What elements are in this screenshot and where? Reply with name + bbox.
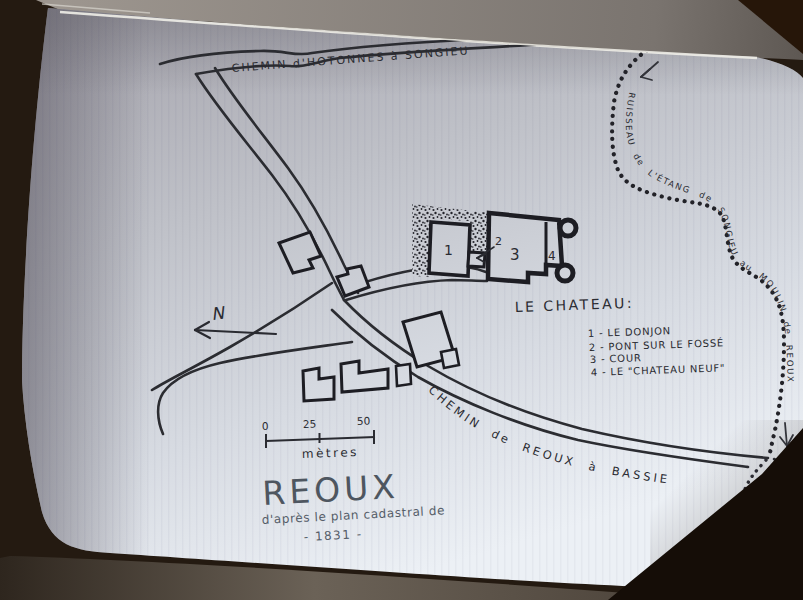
book-photo: CHEMIN d'HOTONNES à SONGIEU CHEMIN de RE… <box>0 0 803 600</box>
scale-0: 0 <box>262 420 269 432</box>
marker-3: 3 <box>510 246 520 264</box>
scale-25: 25 <box>303 418 317 430</box>
map-photo-svg: CHEMIN d'HOTONNES à SONGIEU CHEMIN de RE… <box>0 0 803 600</box>
chateau-tower-north <box>560 220 576 236</box>
scale-50: 50 <box>357 415 371 427</box>
village-building-3-annex <box>441 349 459 368</box>
marker-1: 1 <box>444 242 453 258</box>
village-building-6 <box>396 364 411 386</box>
legend-item-3: 3 - COUR <box>590 352 642 365</box>
scale-unit: mètres <box>302 445 360 461</box>
marker-4: 4 <box>548 249 556 263</box>
marker-2: 2 <box>495 235 502 248</box>
chateau-tower-south <box>557 265 573 281</box>
